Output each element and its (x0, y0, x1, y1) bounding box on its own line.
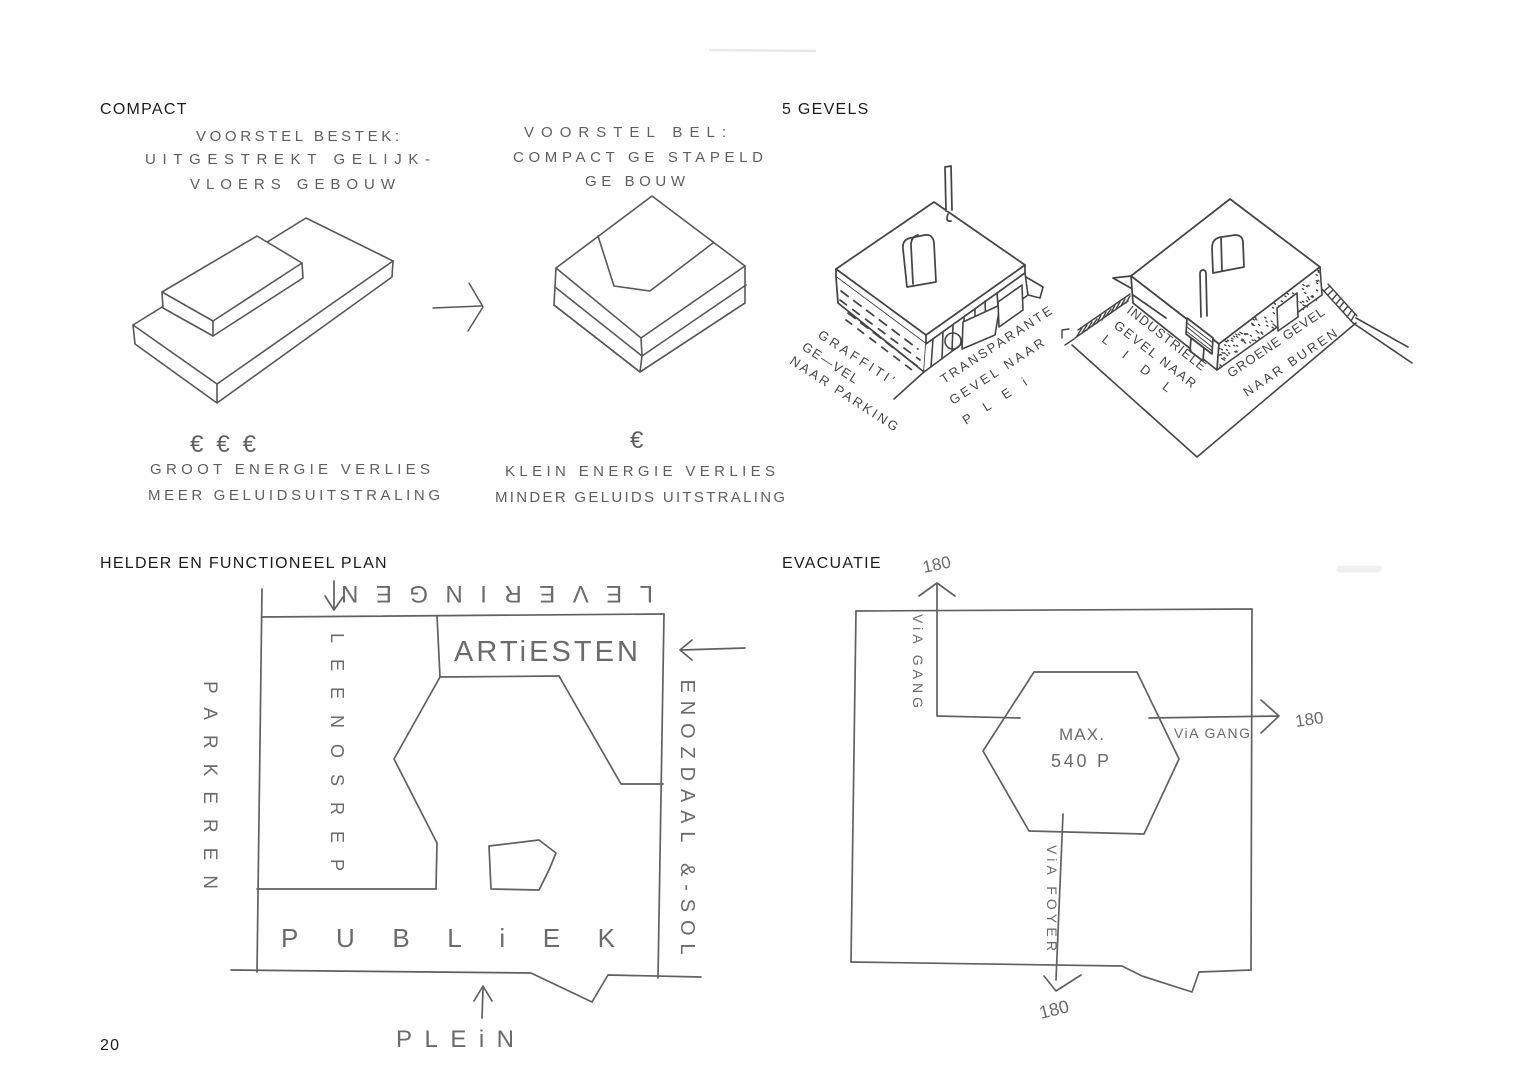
svg-text:PUBLiEK: PUBLiEK (281, 923, 616, 953)
svg-text:MEER GELUIDSUITSTRALING: MEER GELUIDSUITSTRALING (148, 487, 440, 504)
svg-text:VLOERS GEBOUW: VLOERS GEBOUW (190, 176, 396, 193)
svg-text:PARKEREN: PARKEREN (199, 681, 220, 889)
svg-text:GE BOUW: GE BOUW (585, 173, 686, 190)
svg-text:ARTiESTEN: ARTiESTEN (454, 636, 638, 668)
svg-text:180: 180 (921, 552, 953, 576)
svg-text:LEVERINGEN: LEVERINGEN (341, 580, 653, 607)
svg-text:180: 180 (1294, 708, 1325, 731)
svg-text:ViA GANG: ViA GANG (910, 614, 926, 708)
svg-text:€: € (630, 427, 644, 454)
svg-text:€ € €: € € € (190, 431, 257, 458)
svg-text:PLEiN: PLEiN (396, 1026, 514, 1053)
svg-text:COMPACT GE STAPELD: COMPACT GE STAPELD (513, 149, 763, 166)
svg-text:GROOT ENERGIE VERLIES: GROOT ENERGIE VERLIES (150, 461, 430, 478)
svg-text:VOORSTEL BEL:: VOORSTEL BEL: (524, 124, 726, 141)
svg-text:ENOZDAAL &-SOL: ENOZDAAL &-SOL (676, 680, 698, 955)
svg-text:ViA GANG: ViA GANG (1174, 725, 1250, 741)
svg-text:ViA FOYER: ViA FOYER (1044, 845, 1060, 951)
svg-text:20: 20 (100, 1037, 120, 1054)
svg-text:LEENOSREP: LEENOSREP (327, 633, 347, 871)
svg-text:540 P: 540 P (1051, 751, 1109, 771)
svg-text:5 GEVELS: 5 GEVELS (782, 101, 870, 118)
svg-text:UITGESTREKT GELIJK-: UITGESTREKT GELIJK- (145, 151, 430, 168)
svg-text:EVACUATIE: EVACUATIE (782, 555, 882, 572)
svg-text:MAX.: MAX. (1059, 725, 1104, 744)
svg-text:180: 180 (1037, 996, 1071, 1023)
svg-text:MINDER GELUIDS UITSTRALING: MINDER GELUIDS UITSTRALING (495, 489, 785, 506)
svg-text:KLEIN ENERGIE VERLIES: KLEIN ENERGIE VERLIES (505, 463, 775, 480)
svg-text:COMPACT: COMPACT (100, 101, 188, 118)
svg-text:HELDER EN FUNCTIONEEL PLAN: HELDER EN FUNCTIONEEL PLAN (100, 555, 388, 572)
svg-text:VOORSTEL BESTEK:: VOORSTEL BESTEK: (196, 128, 399, 145)
